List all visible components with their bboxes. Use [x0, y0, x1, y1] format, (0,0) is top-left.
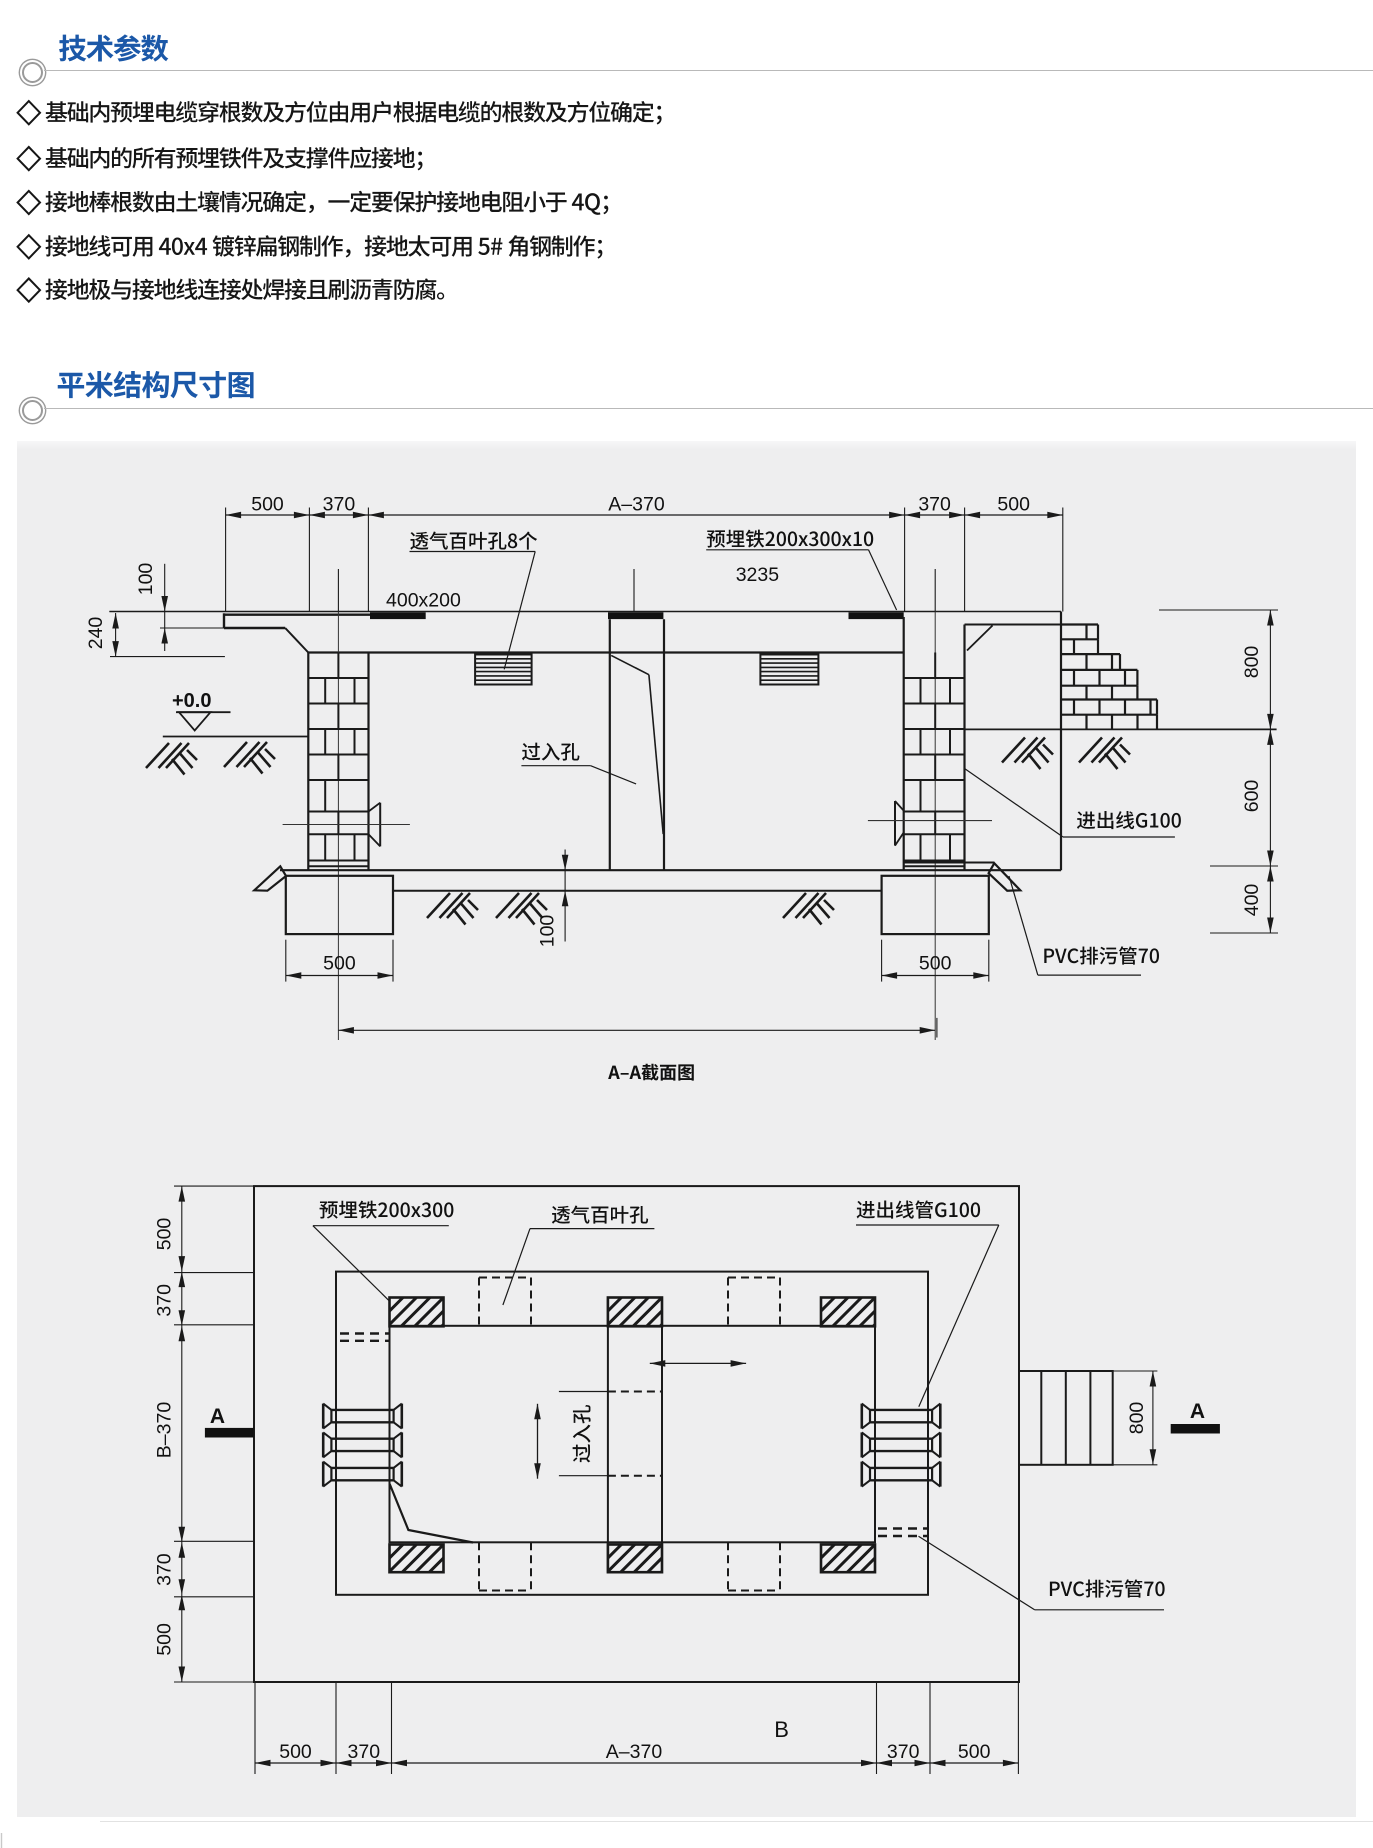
svg-text:370: 370 [918, 494, 951, 516]
svg-text:500: 500 [251, 494, 284, 516]
svg-text:A: A [1190, 1400, 1205, 1423]
svg-text:500: 500 [323, 953, 356, 975]
svg-text:600: 600 [1241, 780, 1263, 813]
svg-text:500: 500 [154, 1218, 176, 1251]
svg-text:400x200: 400x200 [386, 590, 461, 612]
svg-text:+0.0: +0.0 [172, 690, 211, 712]
svg-text:800: 800 [1126, 1402, 1148, 1435]
svg-text:100: 100 [135, 563, 157, 596]
svg-text:B–370: B–370 [154, 1402, 176, 1459]
svg-text:370: 370 [348, 1741, 381, 1763]
svg-text:370: 370 [887, 1741, 920, 1763]
svg-text:A–370: A–370 [606, 1741, 663, 1763]
svg-text:500: 500 [279, 1741, 312, 1763]
svg-text:100: 100 [537, 915, 559, 948]
svg-text:A–370: A–370 [608, 494, 665, 516]
svg-text:500: 500 [154, 1623, 176, 1656]
svg-text:500: 500 [919, 953, 952, 975]
svg-text:240: 240 [85, 617, 107, 650]
svg-text:500: 500 [958, 1741, 991, 1763]
svg-text:A: A [210, 1405, 225, 1428]
svg-text:500: 500 [997, 494, 1030, 516]
svg-text:800: 800 [1241, 646, 1263, 679]
svg-text:370: 370 [154, 1553, 176, 1586]
svg-text:3235: 3235 [736, 564, 780, 586]
svg-text:370: 370 [323, 494, 356, 516]
svg-text:370: 370 [154, 1284, 176, 1317]
svg-text:B: B [774, 1717, 789, 1742]
svg-text:400: 400 [1241, 884, 1263, 917]
